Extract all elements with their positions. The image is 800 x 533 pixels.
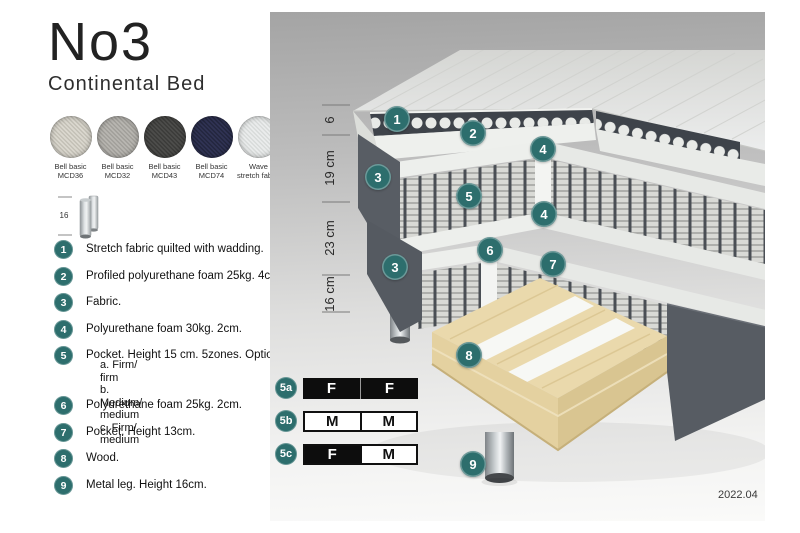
swatch-label: Bell basic (142, 162, 187, 171)
firmness-row-label: 5a (275, 377, 297, 399)
callout-6-foam-base: 6 (477, 237, 503, 263)
spec-item-text: Stretch fabric quilted with wadding. (86, 243, 264, 255)
spec-item-8: 8 Wood. (54, 449, 119, 468)
swatch-label: MCD32 (95, 171, 140, 180)
spec-item-5: 5 Pocket. Height 15 cm. 5zones. Option: (54, 346, 282, 365)
fabric-swatch-circle (144, 116, 186, 158)
spec-item-text: Profiled polyurethane foam 25kg. 4cm. (86, 270, 283, 282)
firmness-cell: F (360, 378, 418, 399)
swatch-bell-basic-mcd36: Bell basic MCD36 (48, 116, 93, 180)
spec-item-4: 4 Polyurethane foam 30kg. 2cm. (54, 320, 242, 339)
firmness-row-5c: 5c F M (275, 443, 418, 465)
spec-item-text: Fabric. (86, 296, 121, 308)
metal-leg-front (482, 432, 518, 486)
spec-item-3: 3 Fabric. (54, 293, 121, 312)
spec-item-badge: 2 (54, 267, 73, 286)
spec-item-7: 7 Pocket. Height 13cm. (54, 423, 195, 442)
dimension-labels: 6 19 cm 23 cm 16 cm (322, 116, 337, 311)
swatch-label: Bell basic (95, 162, 140, 171)
spec-item-text: Polyurethane foam 30kg. 2cm. (86, 323, 242, 335)
callout-8-wood: 8 (456, 342, 482, 368)
fabric-swatch-circle (191, 116, 233, 158)
callout-1-topper: 1 (384, 106, 410, 132)
spec-item-badge: 4 (54, 320, 73, 339)
firmness-row-5b: 5b M M (275, 410, 418, 432)
callout-3-fabric-lower: 3 (382, 254, 408, 280)
fabric-side-right (667, 304, 765, 441)
fabric-swatches: Bell basic MCD36 Bell basic MCD32 Bell b… (48, 116, 281, 180)
spec-item-6: 6 Polyurethane foam 25kg. 2cm. (54, 396, 242, 415)
callout-3-fabric-upper: 3 (365, 164, 391, 190)
swatch-bell-basic-mcd32: Bell basic MCD32 (95, 116, 140, 180)
spec-item-text: Wood. (86, 452, 119, 464)
spec-item-badge: 9 (54, 476, 73, 495)
spec-item-badge: 8 (54, 449, 73, 468)
callout-5-pocket-15: 5 (456, 183, 482, 209)
swatch-label: MCD36 (48, 171, 93, 180)
swatch-bell-basic-mcd43: Bell basic MCD43 (142, 116, 187, 180)
callout-7-pocket-13: 7 (540, 251, 566, 277)
swatch-label: MCD74 (189, 171, 234, 180)
firmness-cell: F (305, 446, 360, 463)
firmness-cell: M (305, 413, 360, 430)
spec-item-text: Polyurethane foam 25kg. 2cm. (86, 399, 242, 411)
firmness-cell: F (303, 378, 360, 399)
spec-item-badge: 6 (54, 396, 73, 415)
callout-2-profiled-foam: 2 (460, 120, 486, 146)
callout-9-metal-leg: 9 (460, 451, 486, 477)
dimension-label: 23 cm (322, 220, 337, 255)
leg-dimension-icon: 16 (52, 188, 112, 247)
page-root: { "title": "No3", "subtitle": "Continent… (0, 0, 800, 533)
swatch-label: Bell basic (189, 162, 234, 171)
option-line: a. Firm/ firm (100, 359, 142, 384)
spec-item-badge: 3 (54, 293, 73, 312)
swatch-bell-basic-mcd74: Bell basic MCD74 (189, 116, 234, 180)
dimension-label: 19 cm (322, 150, 337, 185)
fabric-swatch-circle (50, 116, 92, 158)
firmness-row-5a: 5a F F (275, 377, 418, 399)
firmness-row-label: 5b (275, 410, 297, 432)
fabric-swatch-circle (97, 116, 139, 158)
firmness-cell: M (360, 413, 417, 430)
spec-item-text: Metal leg. Height 16cm. (86, 479, 207, 491)
brand-block: No3 Continental Bed (48, 14, 205, 96)
left-column: No3 Continental Bed Bell basic MCD36 Bel… (0, 0, 270, 533)
swatch-label: Bell basic (48, 162, 93, 171)
spec-item-badge: 7 (54, 423, 73, 442)
spec-item-text: Pocket. Height 13cm. (86, 426, 195, 438)
diagram-panel: 6 19 cm 23 cm 16 cm 1 2 3 4 5 4 6 7 3 8 … (270, 12, 765, 521)
leg-height-label: 16 (60, 211, 69, 220)
callout-4-foam-bottom: 4 (531, 201, 557, 227)
product-title: No3 (48, 14, 205, 71)
spec-item-badge: 1 (54, 240, 73, 259)
leg-dimension-drawing: 16 (52, 188, 112, 242)
dimension-label: 16 cm (322, 276, 337, 311)
spec-item-9: 9 Metal leg. Height 16cm. (54, 476, 207, 495)
product-subtitle: Continental Bed (48, 73, 205, 96)
firmness-row-label: 5c (275, 443, 297, 465)
spec-item-badge: 5 (54, 346, 73, 365)
callout-4-foam-top: 4 (530, 136, 556, 162)
firmness-cell: M (360, 446, 417, 463)
swatch-label: MCD43 (142, 171, 187, 180)
spec-item-2: 2 Profiled polyurethane foam 25kg. 4cm. (54, 267, 283, 286)
dimension-label: 6 (322, 116, 337, 123)
spec-item-1: 1 Stretch fabric quilted with wadding. (54, 240, 264, 259)
revision-date: 2022.04 (718, 489, 758, 501)
